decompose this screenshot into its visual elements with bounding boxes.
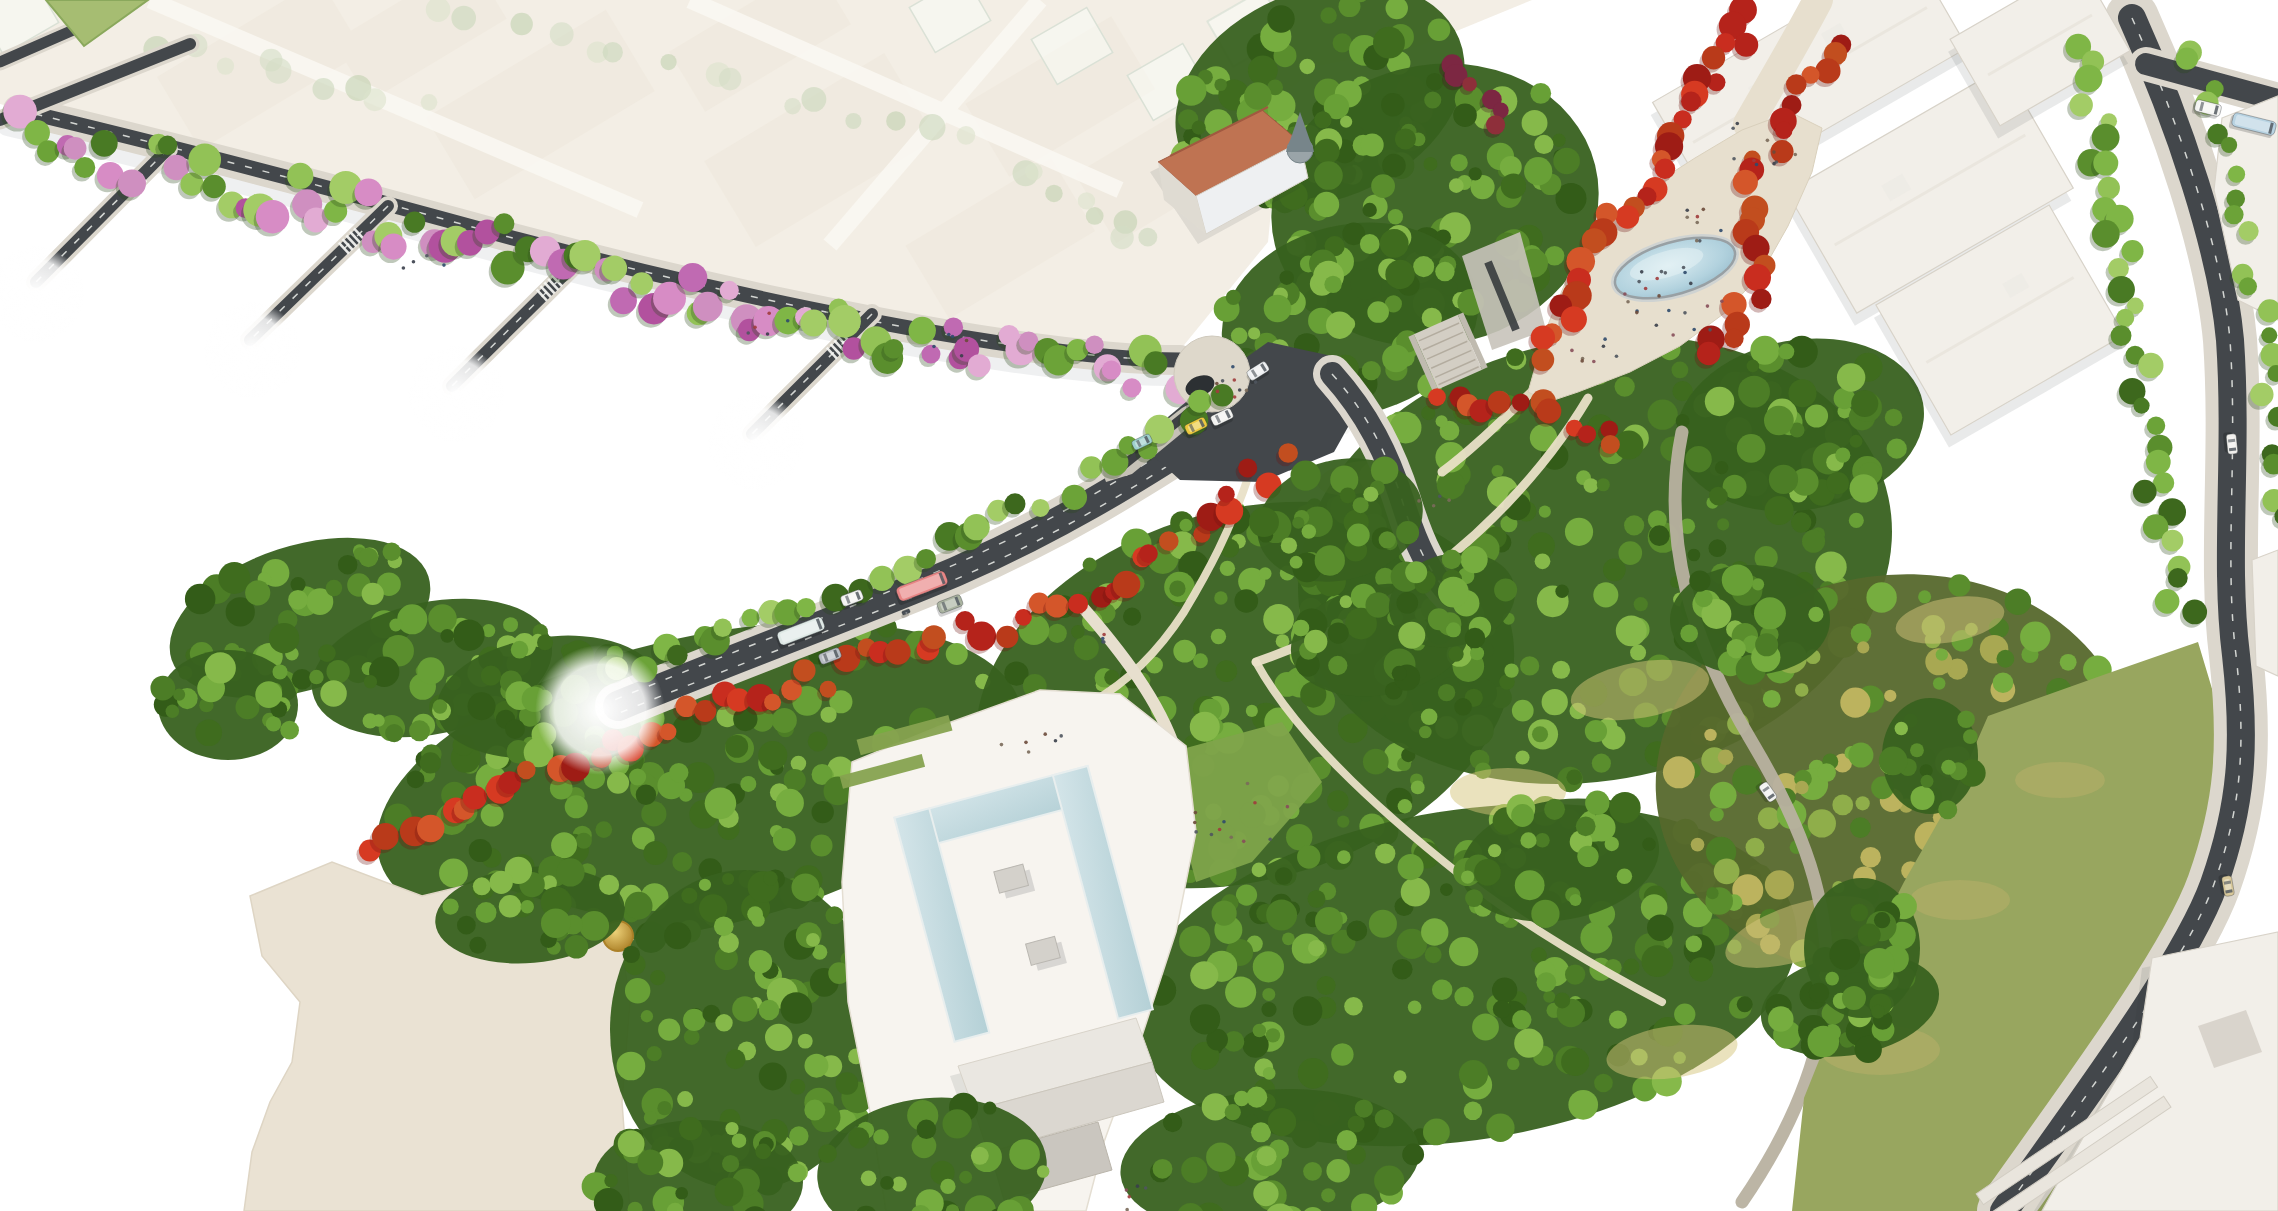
aerial-render-stage: Aerial architectural rendering of an urb… xyxy=(0,0,2278,1211)
masterplan-aerial-render: Aerial architectural rendering of an urb… xyxy=(0,0,2278,1211)
